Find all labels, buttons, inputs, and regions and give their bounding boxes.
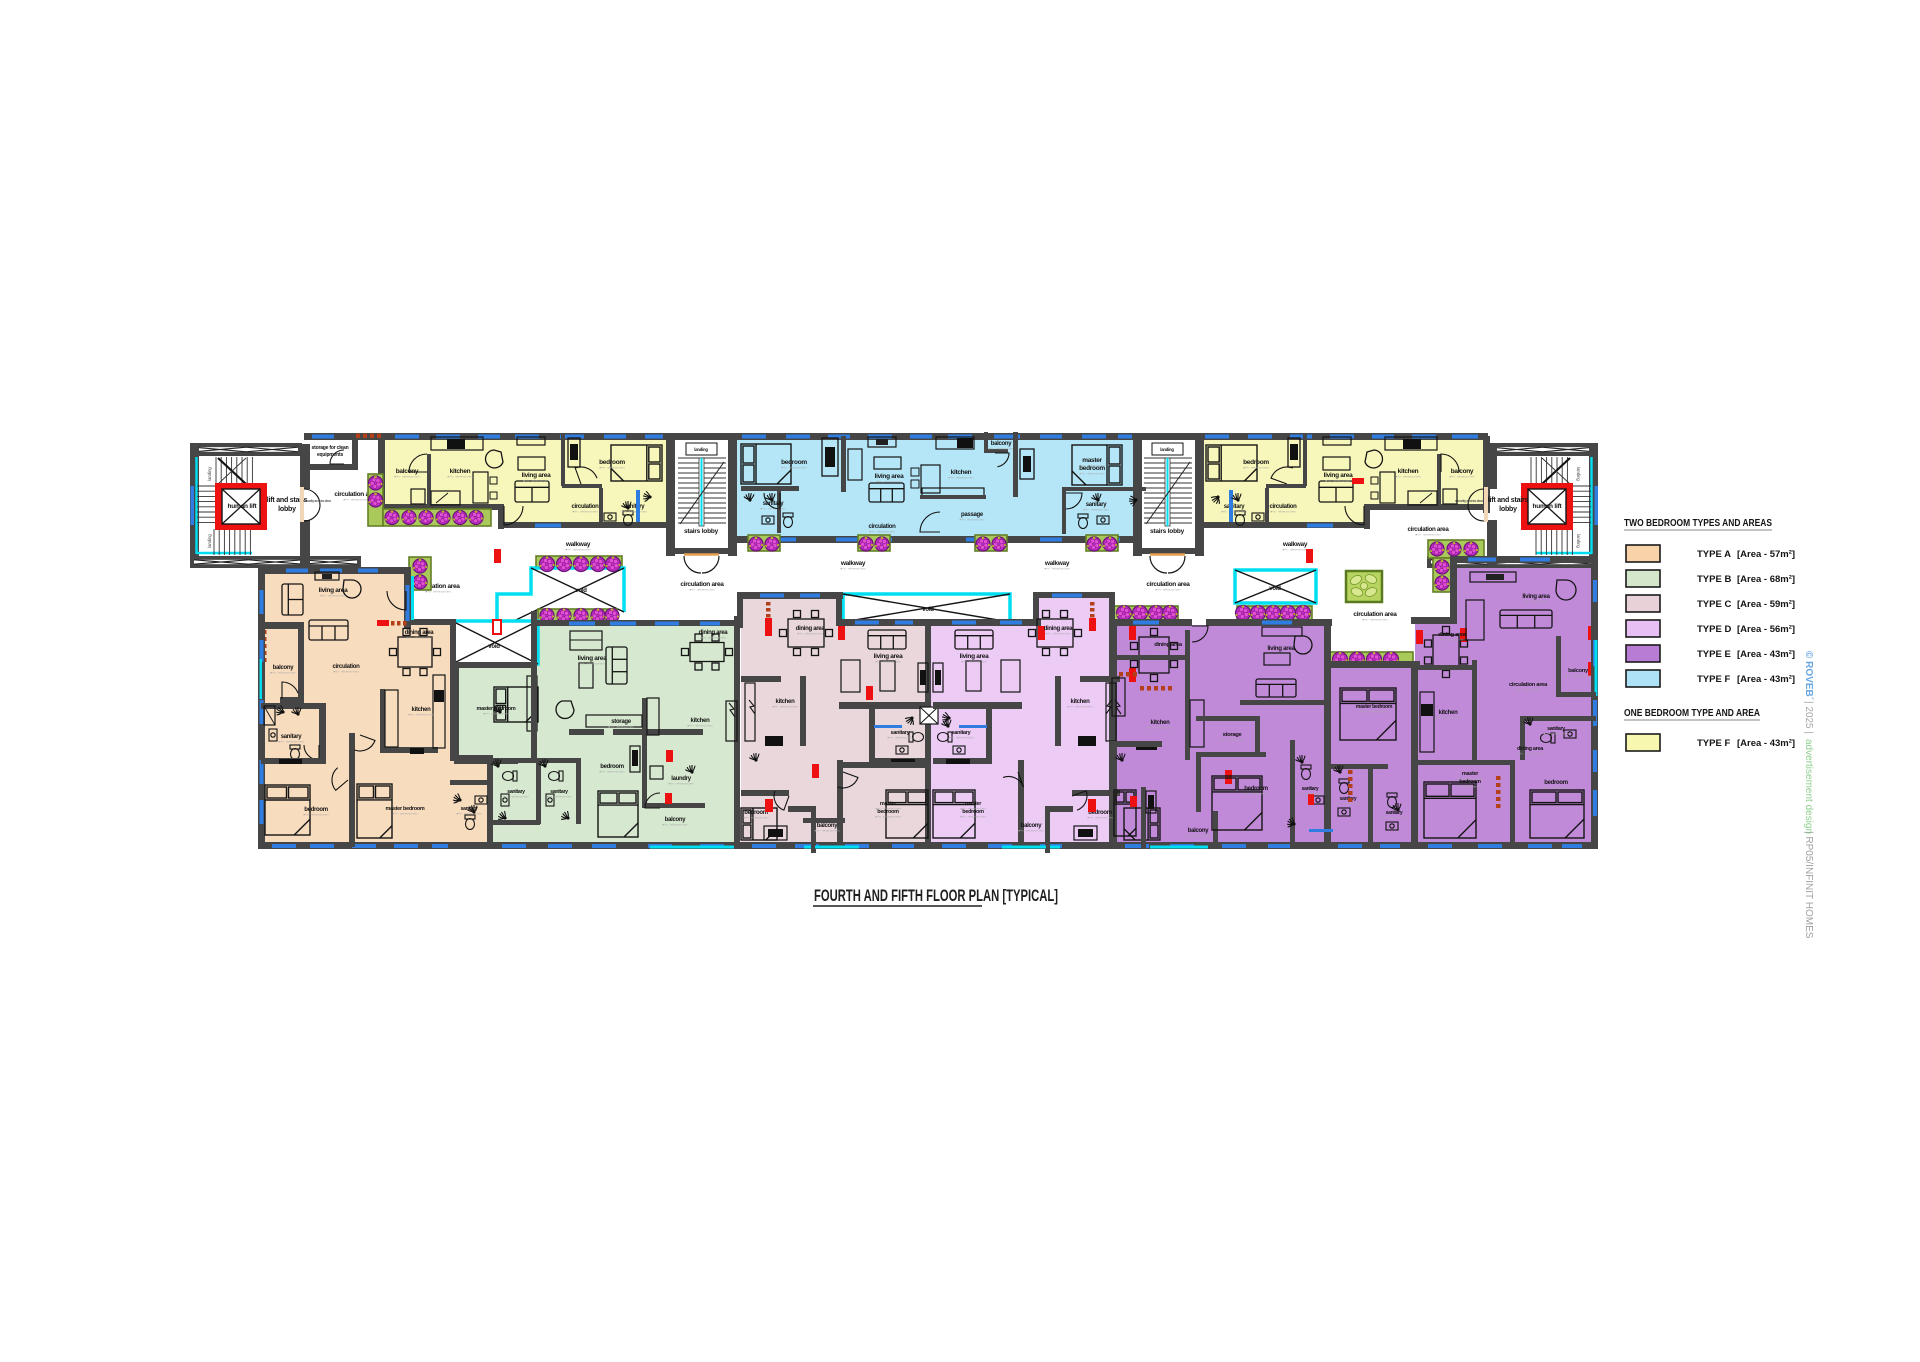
svg-text:▰ fn - reference item: ▰ fn - reference item [814,829,840,833]
svg-text:▰ fn - reference item: ▰ fn - reference item [960,815,986,819]
svg-text:TYPE B: TYPE B [1697,574,1731,585]
svg-text:landing: landing [207,534,212,548]
svg-text:▰ fn - reference item: ▰ fn - reference item [948,736,974,740]
svg-text:▰ fn - reference item: ▰ fn - reference item [869,530,895,534]
svg-text:▰ fn - reference item: ▰ fn - reference item [1045,632,1071,636]
svg-text:FOURTH AND FIFTH FLOOR PLAN [T: FOURTH AND FIFTH FLOOR PLAN [TYPICAL] [814,887,1058,905]
svg-text:▰ fn - reference item: ▰ fn - reference item [447,475,473,479]
svg-text:▰ fn - reference item: ▰ fn - reference item [1395,475,1421,479]
svg-text:▰ fn - reference item: ▰ fn - reference item [1018,829,1044,833]
svg-text:▰ fn - reference item: ▰ fn - reference item [406,636,432,640]
svg-text:▰ fn - reference item: ▰ fn - reference item [1087,816,1113,820]
svg-text:▰ fn - reference item: ▰ fn - reference item [546,795,572,799]
svg-text:▰ fn - reference item: ▰ fn - reference item [320,594,346,598]
svg-text:TYPE F: TYPE F [1697,738,1730,749]
svg-text:▰ fn - reference item: ▰ fn - reference item [599,466,625,470]
svg-text:▰ fn - reference item: ▰ fn - reference item [1543,732,1569,736]
svg-text:▰ fn - reference item: ▰ fn - reference item [523,479,549,483]
svg-text:▰ fn - reference item: ▰ fn - reference item [1449,475,1475,479]
svg-text:▰ fn - reference item: ▰ fn - reference item [687,724,713,728]
svg-text:landing: landing [1160,447,1174,452]
svg-text:▰ fn - reference item: ▰ fn - reference item [1243,466,1269,470]
svg-text:▰ fn - reference item: ▰ fn - reference item [1147,726,1173,730]
svg-text:▰ fn - reference item: ▰ fn - reference item [456,812,482,816]
svg-text:TYPE C: TYPE C [1697,599,1731,610]
svg-text:▰ fn - reference item: ▰ fn - reference item [1044,567,1070,571]
svg-text:▰ fn - reference item: ▰ fn - reference item [1515,688,1541,692]
svg-text:▰ fn - reference item: ▰ fn - reference item [1185,834,1211,838]
svg-text:▰ fn - reference item: ▰ fn - reference item [662,823,688,827]
svg-text:void: void [575,588,587,594]
svg-text:[Area - 43m²]: [Area - 43m²] [1737,674,1795,685]
svg-text:ONE BEDROOM TYPE AND AREA: ONE BEDROOM TYPE AND AREA [1624,707,1760,719]
svg-text:[Area - 56m²]: [Area - 56m²] [1737,624,1795,635]
svg-text:▰ fn - reference item: ▰ fn - reference item [1362,618,1388,622]
svg-text:▰ fn - reference item: ▰ fn - reference item [572,510,598,514]
svg-text:▰ fn - reference item: ▰ fn - reference item [1282,548,1308,552]
svg-text:▰ fn - reference item: ▰ fn - reference item [579,662,605,666]
svg-text:▰ fn - reference item: ▰ fn - reference item [689,588,715,592]
svg-text:▰ fn - reference item: ▰ fn - reference item [599,770,625,774]
svg-text:▰ fn - reference item: ▰ fn - reference item [948,476,974,480]
svg-text:human lift: human lift [1532,503,1562,510]
svg-text:[Area - 59m²]: [Area - 59m²] [1737,599,1795,610]
svg-text:▰ fn - reference item: ▰ fn - reference item [988,447,1014,451]
svg-text:▰ fn - reference item: ▰ fn - reference item [875,660,901,664]
svg-text:▰ fn - reference item: ▰ fn - reference item [1083,508,1109,512]
svg-text:▰ fn - reference item: ▰ fn - reference item [1517,752,1543,756]
svg-text:▰ fn - reference item: ▰ fn - reference item [565,548,591,552]
svg-text:▰ fn - reference item: ▰ fn - reference item [797,632,823,636]
svg-text:void: void [488,644,500,650]
svg-text:[Area - 43m²]: [Area - 43m²] [1737,649,1795,660]
svg-text:▰ fn - reference item: ▰ fn - reference item [343,498,369,502]
svg-text:| RP05/INFINIT HOMES: | RP05/INFINIT HOMES [1803,831,1814,939]
svg-text:▰ fn - reference item: ▰ fn - reference item [503,795,529,799]
svg-text:▰ fn - reference item: ▰ fn - reference item [959,518,985,522]
svg-text:▰ fn - reference item: ▰ fn - reference item [1457,785,1483,789]
svg-text:TYPE A: TYPE A [1697,549,1731,560]
svg-text:▰ fn - reference item: ▰ fn - reference item [333,670,359,674]
svg-text:▰ fn - reference item: ▰ fn - reference item [1297,792,1323,796]
svg-text:stairs lobby: stairs lobby [684,528,719,535]
svg-text:▰ fn - reference item: ▰ fn - reference item [961,660,987,664]
svg-text:void: void [922,607,934,613]
svg-text:human lift: human lift [227,503,257,510]
svg-text:▰ fn - reference item: ▰ fn - reference item [621,510,647,514]
svg-text:▰ fn - reference item: ▰ fn - reference item [875,815,901,819]
svg-text:▰ fn - reference item: ▰ fn - reference item [278,740,304,744]
svg-text:lobby: lobby [1499,506,1517,513]
svg-text:▰ fn - reference item: ▰ fn - reference item [394,475,420,479]
svg-text:[Area - 57m²]: [Area - 57m²] [1737,549,1795,560]
svg-text:TYPE E: TYPE E [1697,649,1731,660]
svg-text:▰ fn - reference item: ▰ fn - reference item [772,705,798,709]
svg-text:landing: landing [207,467,212,481]
svg-text:▰ fn - reference item: ▰ fn - reference item [1565,674,1591,678]
svg-text:© ROVEB´: © ROVEB´ [1803,651,1814,700]
svg-text:▰ fn - reference item: ▰ fn - reference item [781,466,807,470]
svg-text:[Area - 68m²]: [Area - 68m²] [1737,574,1795,585]
svg-text:▰ fn - reference item: ▰ fn - reference item [887,736,913,740]
svg-text:▰ fn - reference item: ▰ fn - reference item [1415,533,1441,537]
svg-text:landing: landing [694,447,708,452]
svg-text:▰ fn - reference item: ▰ fn - reference item [1361,710,1387,714]
svg-text:▰ fn - reference item: ▰ fn - reference item [743,816,769,820]
svg-text:▰ fn - reference item: ▰ fn - reference item [668,782,694,786]
svg-text:▰ fn - reference item: ▰ fn - reference item [1439,638,1465,642]
svg-text:▰ fn - reference item: ▰ fn - reference item [1335,802,1361,806]
svg-text:▰ fn - reference item: ▰ fn - reference item [1435,716,1461,720]
svg-text:▰ fn - reference item: ▰ fn - reference item [700,636,726,640]
svg-text:▰ fn - reference item: ▰ fn - reference item [1079,472,1105,476]
svg-text:TYPE D: TYPE D [1697,624,1731,635]
svg-text:▰ fn - reference item: ▰ fn - reference item [1381,816,1407,820]
svg-text:TWO BEDROOM TYPES AND AREAS: TWO BEDROOM TYPES AND AREAS [1624,517,1772,529]
svg-text:▰ fn - reference item: ▰ fn - reference item [1155,588,1181,592]
svg-text:▰ fn - reference item: ▰ fn - reference item [270,671,296,675]
svg-text:▰ fn - reference item: ▰ fn - reference item [1243,792,1269,796]
svg-text:landing: landing [1576,534,1581,548]
svg-text:▰ fn - reference item: ▰ fn - reference item [392,812,418,816]
svg-text:▰ fn - reference item: ▰ fn - reference item [1067,705,1093,709]
svg-text:lobby: lobby [278,506,296,513]
svg-text:security access door: security access door [303,499,332,503]
svg-text:▰ fn - reference item: ▰ fn - reference item [1325,479,1351,483]
svg-text:▰ fn - reference item: ▰ fn - reference item [408,713,434,717]
svg-text:stairs lobby: stairs lobby [1150,528,1185,535]
svg-text:▰ fn - reference item: ▰ fn - reference item [608,725,634,729]
svg-text:landing: landing [1576,467,1581,481]
svg-text:[Area - 43m²]: [Area - 43m²] [1737,738,1795,749]
svg-text:▰ fn - reference item: ▰ fn - reference item [1523,600,1549,604]
svg-text:▰ fn - reference item: ▰ fn - reference item [1270,510,1296,514]
svg-text:| 2025 |: | 2025 | [1803,701,1814,734]
svg-text:security access door: security access door [1455,499,1484,503]
svg-text:lift and stairs: lift and stairs [1488,497,1529,504]
svg-text:▰ fn - reference item: ▰ fn - reference item [303,813,329,817]
svg-text:▰ fn - reference item: ▰ fn - reference item [483,712,509,716]
svg-text:▰ fn - reference item: ▰ fn - reference item [840,567,866,571]
svg-text:advertisement design: advertisement design [1803,739,1814,834]
svg-text:TYPE F: TYPE F [1697,674,1730,685]
svg-text:▰ fn - reference item: ▰ fn - reference item [1221,510,1247,514]
svg-text:void: void [1269,586,1281,592]
svg-text:▰ fn - reference item: ▰ fn - reference item [1219,738,1245,742]
svg-text:equipments: equipments [317,452,343,458]
svg-text:▰ fn - reference item: ▰ fn - reference item [1543,786,1569,790]
